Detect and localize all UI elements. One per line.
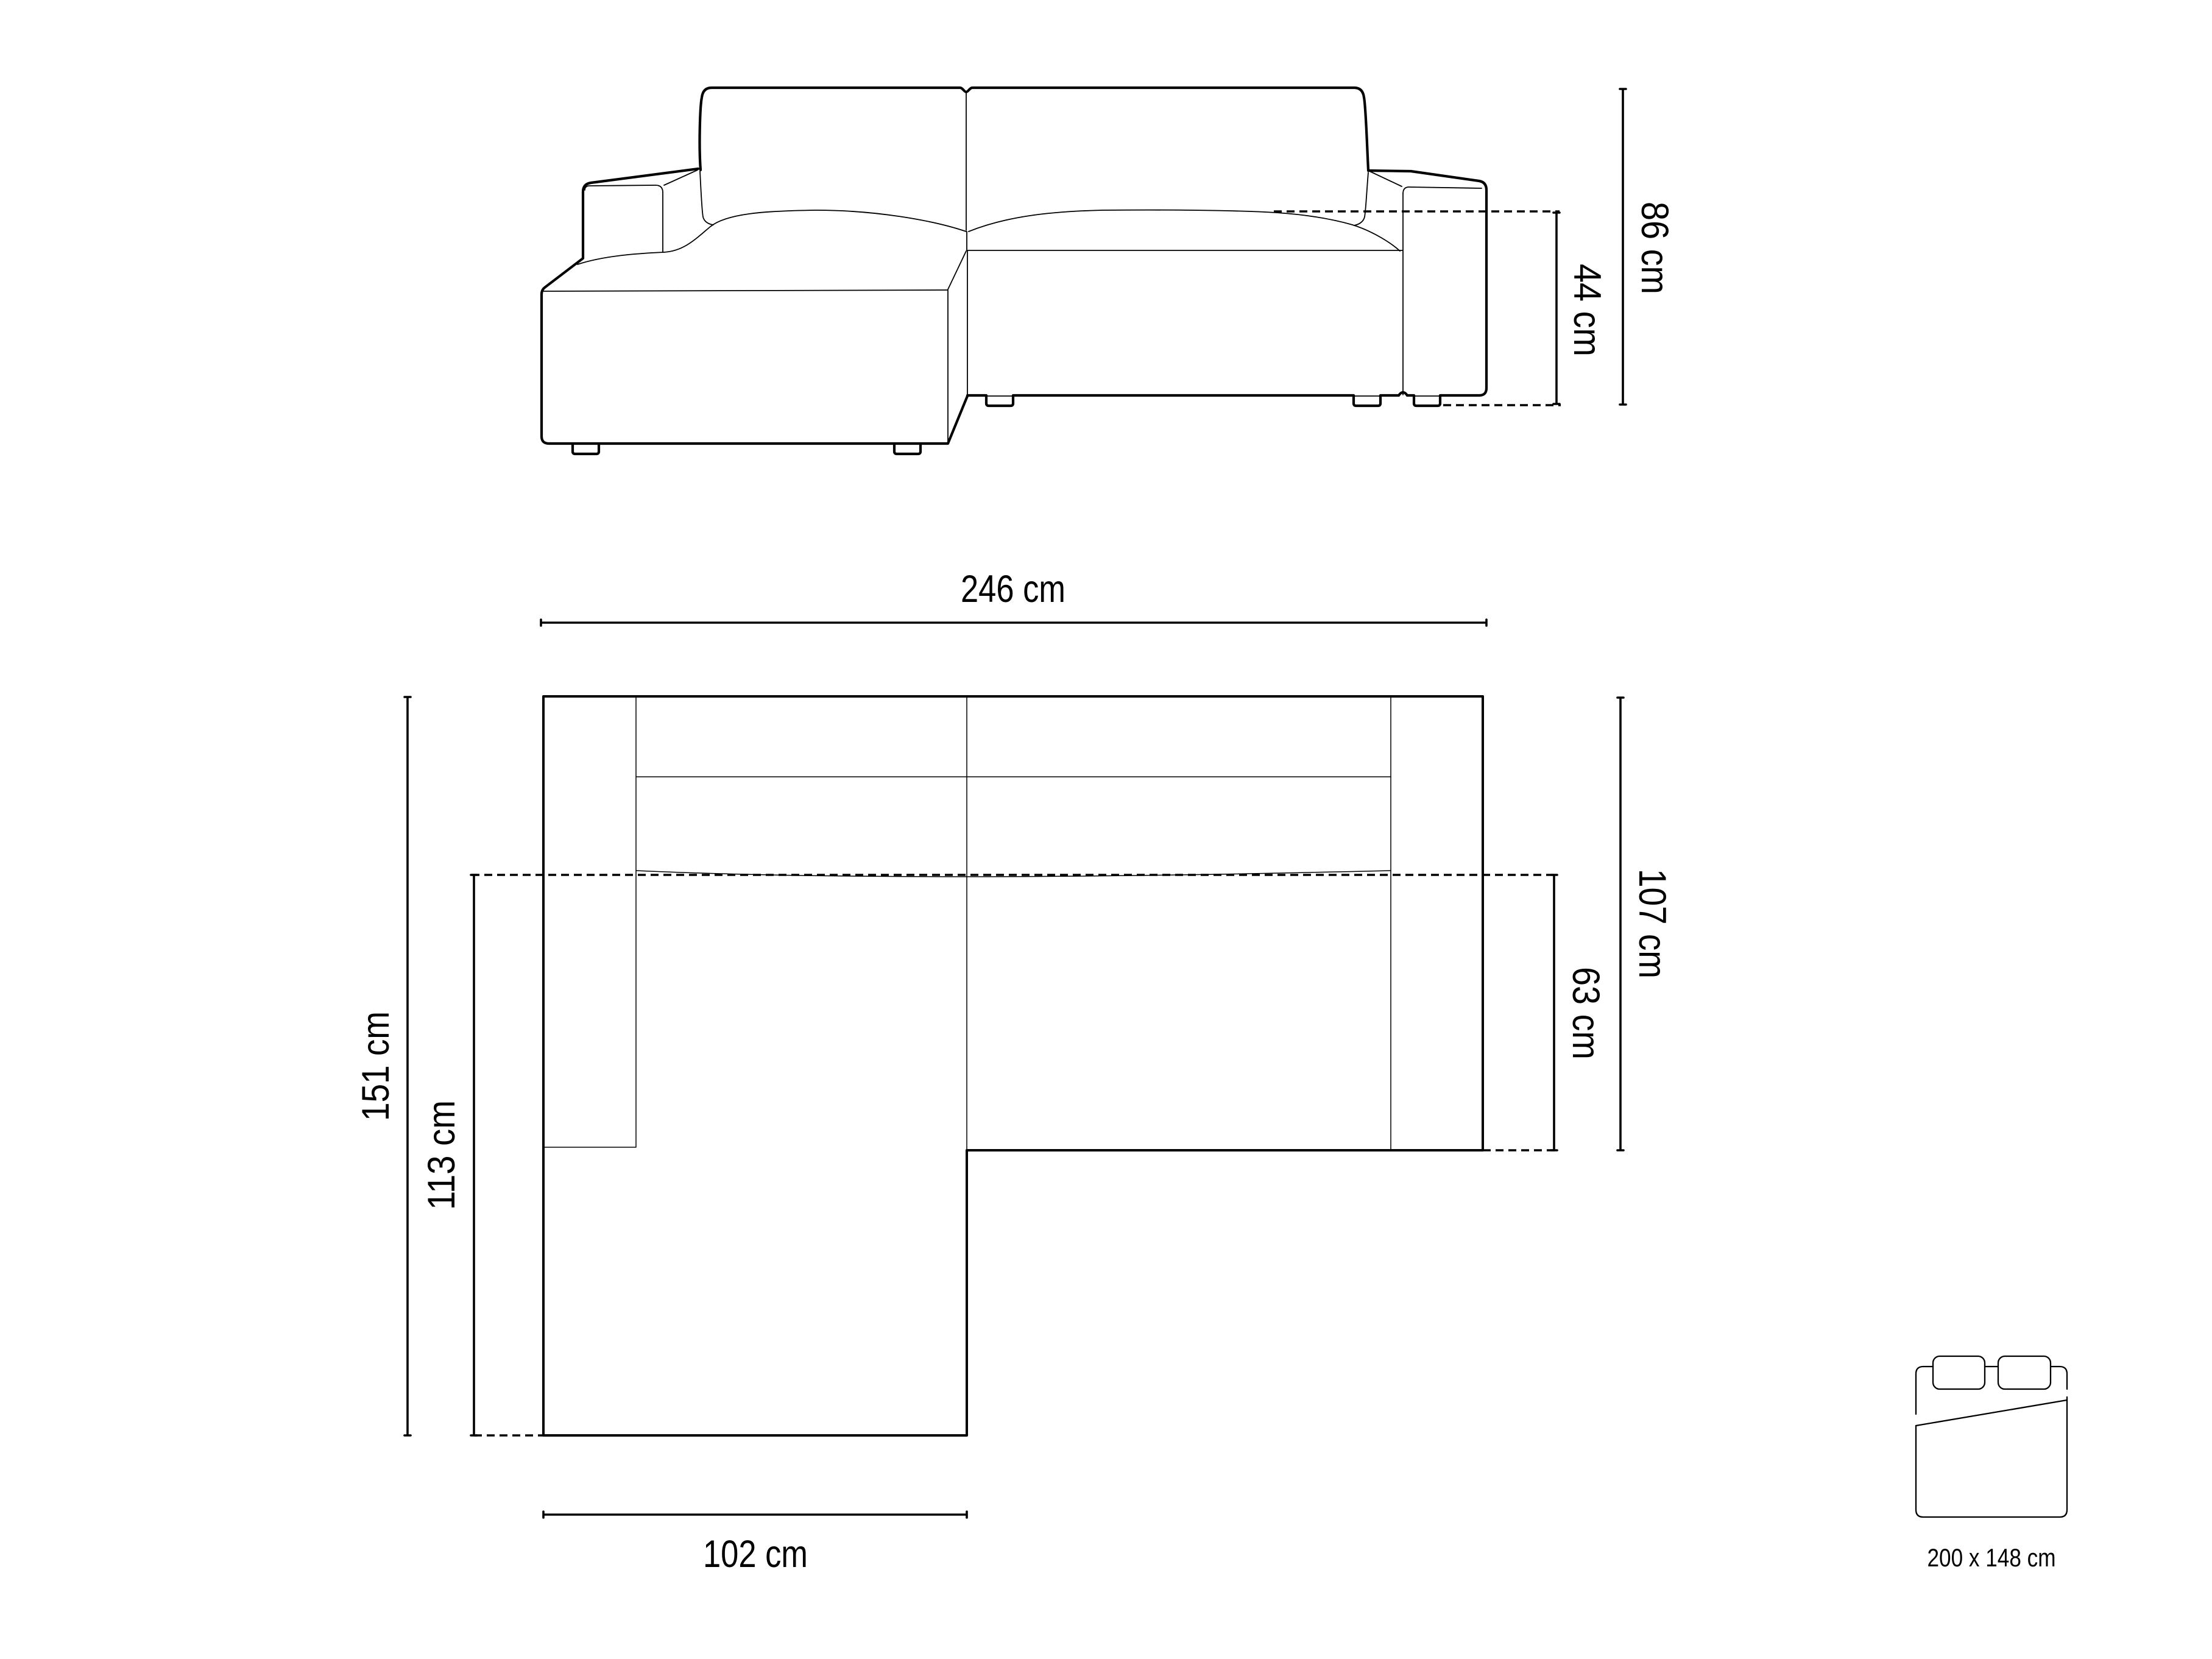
svg-text:107 cm: 107 cm <box>1631 869 1673 978</box>
svg-text:44 cm: 44 cm <box>1566 264 1608 356</box>
svg-text:200 x 148 cm: 200 x 148 cm <box>1928 1543 2056 1572</box>
svg-text:151 cm: 151 cm <box>355 1011 397 1121</box>
svg-text:63 cm: 63 cm <box>1564 967 1607 1059</box>
svg-text:113 cm: 113 cm <box>420 1100 463 1210</box>
svg-text:102 cm: 102 cm <box>703 1533 808 1576</box>
svg-text:86 cm: 86 cm <box>1633 202 1676 294</box>
svg-text:246 cm: 246 cm <box>961 568 1065 610</box>
